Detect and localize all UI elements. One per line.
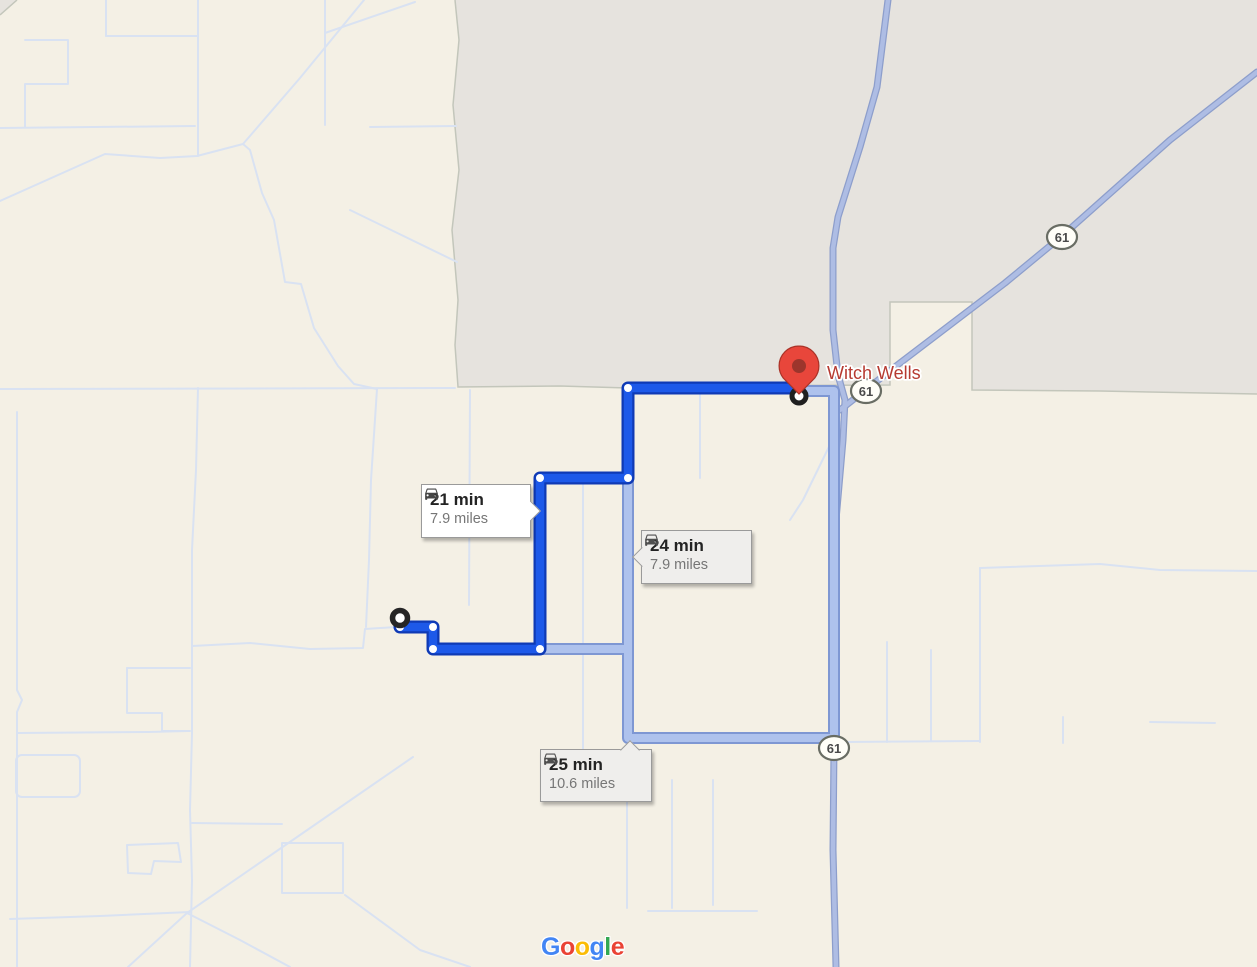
shield-label: 61 (827, 741, 841, 756)
highway-shield-northeast: 61 (1047, 225, 1077, 249)
highway-shield-south: 61 (819, 736, 849, 760)
car-icon (541, 750, 560, 767)
shield-label: 61 (1055, 230, 1069, 245)
route-option-alt-2[interactable]: 25 min 10.6 miles (540, 749, 652, 802)
car-icon (642, 531, 661, 548)
route-start-marker[interactable] (393, 611, 408, 626)
logo-letter: o (575, 933, 590, 961)
route-distance: 7.9 miles (650, 556, 743, 574)
logo-letter: o (560, 933, 575, 961)
place-label[interactable]: Witch Wells (827, 363, 921, 383)
google-logo[interactable]: Google (541, 933, 624, 962)
route-distance: 7.9 miles (430, 510, 522, 528)
logo-letter: G (541, 933, 560, 961)
car-icon (422, 485, 441, 502)
map-canvas[interactable]: 61 61 61 Witch Wells 21 min 7.9 miles 24… (0, 0, 1257, 967)
route-distance: 10.6 miles (549, 775, 643, 793)
route-option-selected[interactable]: 21 min 7.9 miles (421, 484, 531, 538)
shield-label: 61 (859, 384, 873, 399)
pin-inner-dot (792, 359, 806, 373)
logo-letter: e (611, 933, 624, 961)
logo-letter: g (590, 933, 605, 961)
locality-area (452, 0, 1257, 394)
route-option-alt-1[interactable]: 24 min 7.9 miles (641, 530, 752, 584)
